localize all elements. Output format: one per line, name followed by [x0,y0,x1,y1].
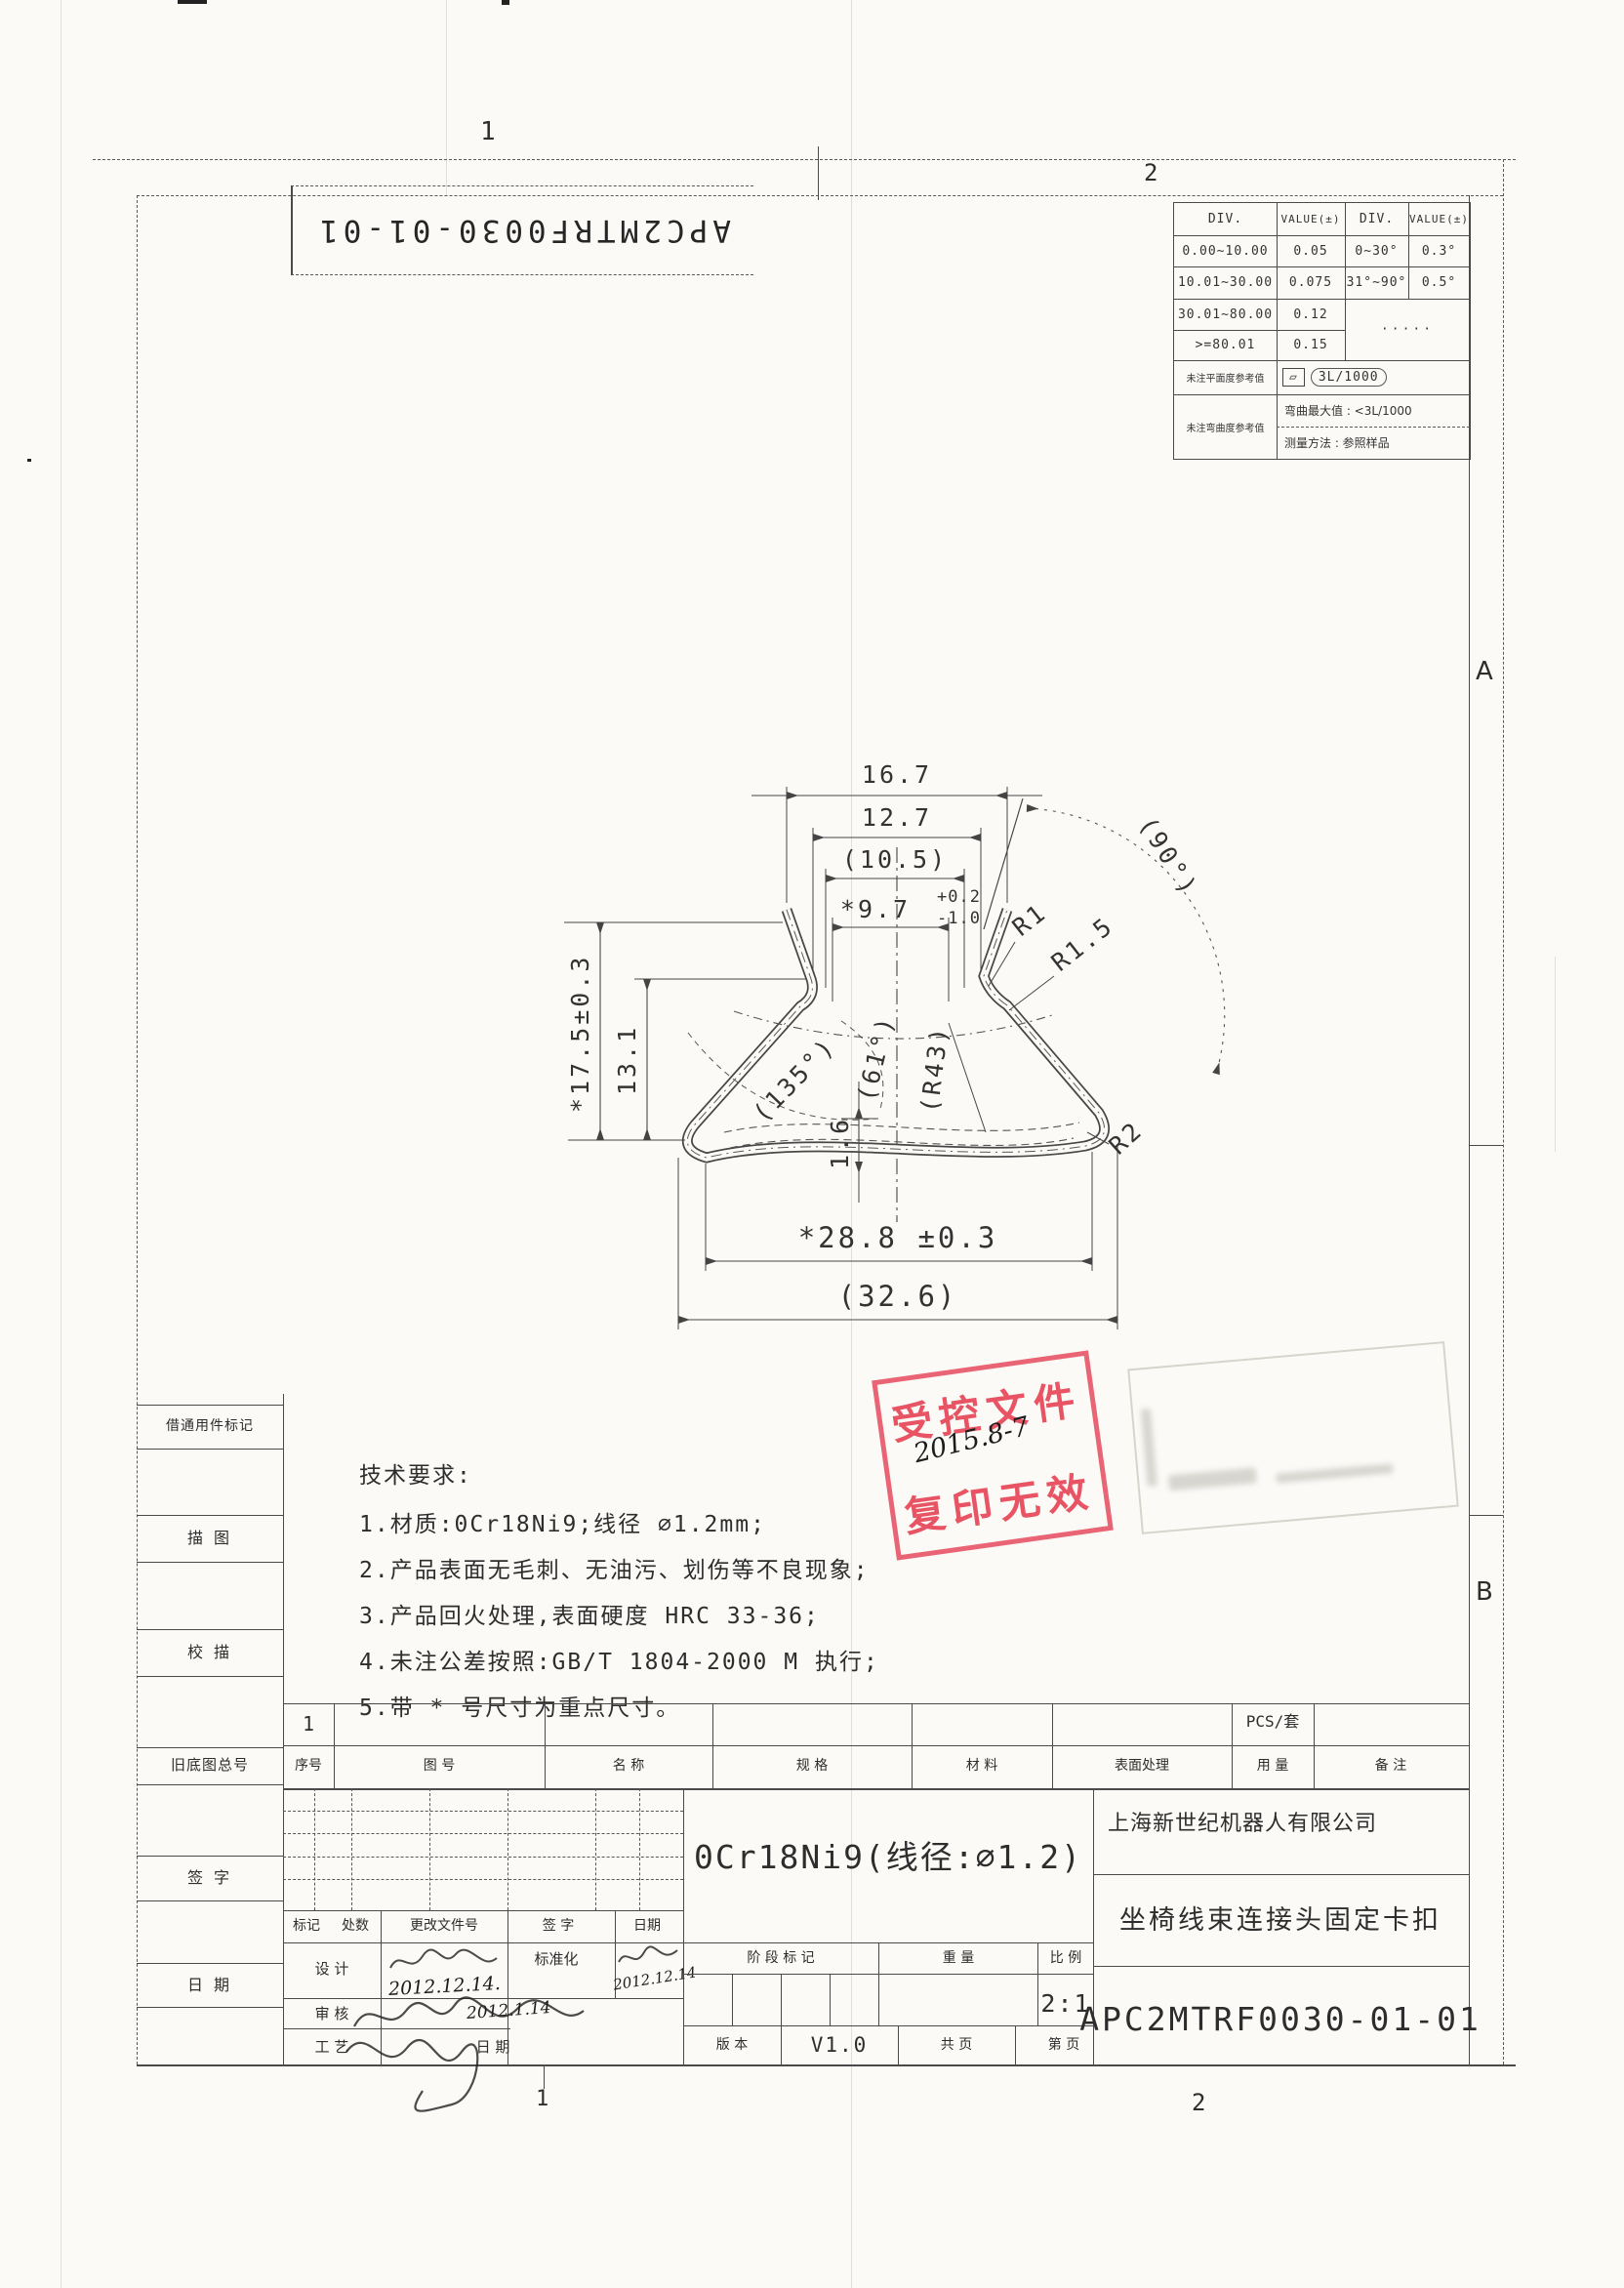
dim-angle-61: (61°) [852,1012,901,1105]
arc-90 [1027,808,1225,1074]
dim-10-5: (10.5) [842,845,948,874]
margin-label-signature: 签 字 [187,1870,232,1886]
tb-version-value: V1.0 [811,2035,869,2056]
controlled-document-stamp: 受控文件 复印无效 [872,1350,1114,1560]
tb-label-version: 版 本 [716,2038,748,2052]
phantom-curve [724,1123,1079,1132]
zone-tick-right [1469,1145,1503,1146]
bom-top-line [283,1703,1469,1704]
tb-label-design: 设 计 [315,1962,349,1977]
tol-bend-label: 未注弯曲度参考值 [1174,394,1277,459]
frame-right-outer [1503,159,1504,2064]
tol-cell: >=80.01 [1174,330,1277,360]
flatness-symbol-icon: ▱ [1282,368,1305,387]
titleblock-top-line [283,1788,1469,1790]
tol-header-value: VALUE(±) [1277,203,1345,235]
dim-r1: R1 [1007,898,1052,942]
design-signature-scrawl [386,1942,503,1983]
dim-9-7-tol-lower: -1.0 [937,909,981,928]
bom-header-note: 备 注 [1375,1759,1406,1773]
frame-top-outer [93,159,1516,160]
zone-number-top-2: 2 [1144,161,1157,184]
tol-cell-merged: ····· [1345,299,1470,360]
bom-header-name: 名 称 [613,1759,644,1773]
tol-cell: 0.3° [1408,235,1470,266]
tol-header-value2: VALUE(±) [1408,203,1470,235]
tb-label-stage: 阶 段 标 记 [747,1951,814,1965]
tolerance-table: DIV. VALUE(±) DIV. VALUE(±) 0.00~10.00 0… [1173,202,1471,460]
margin-label-old-master-no: 旧底图总号 [171,1758,249,1773]
drawing-sheet: 1 2 1 2 A B APC2MTRF0030-01-01 DIV. VALU… [0,0,1624,2288]
tb-material-spec: 0Cr18Ni9(线径:∅1.2) [694,1841,1082,1873]
frame-right-inner [1469,195,1470,2064]
zone-number-bottom-2: 2 [1192,2091,1205,2114]
dim-13-1: 13.1 [613,1025,641,1095]
tb-label-pages-total: 共 页 [941,2038,972,2052]
faint-stamp [1127,1341,1459,1534]
zone-number-top-1: 1 [480,119,496,144]
tol-cell: 0.05 [1277,235,1345,266]
tol-cell: 0~30° [1345,235,1408,266]
fold-line [1555,957,1556,1152]
tech-req-item: 2.产品表面无毛刺、无油污、划伤等不良现象; [359,1551,879,1584]
tol-cell: 10.01~30.00 [1174,266,1277,299]
flatness-value: 3L/1000 [1311,368,1387,387]
tb-label-check: 审 核 [315,2007,349,2022]
tech-req-item: 1.材质:0Cr18Ni9;线径 ∅1.2mm; [359,1505,879,1538]
zone-number-bottom-1: 1 [536,2089,548,2110]
dim-9-7: *9.7 [840,895,911,923]
tb-label-count: 处数 [342,1919,369,1933]
tol-bend-method: 测量方法 : 参照样品 [1277,427,1478,459]
standardize-signature-scrawl [615,1942,683,1974]
zone-tick-right [1469,1515,1503,1516]
dim-1-6: 1.6 [826,1117,854,1169]
fold-line [61,0,61,2288]
tb-drawing-number: APC2MTRF0030-01-01 [1079,2003,1482,2035]
dim-r1-5: R1.5 [1046,911,1119,976]
technical-requirements: 技术要求: 1.材质:0Cr18Ni9;线径 ∅1.2mm; 2.产品表面无毛刺… [359,1456,879,1722]
tech-req-title: 技术要求: [359,1456,879,1490]
margin-label-borrowed-parts: 借通用件标记 [166,1419,254,1433]
tb-label-change-doc: 更改文件号 [410,1919,478,1933]
tol-cell: 0.00~10.00 [1174,235,1277,266]
tb-label-date: 日期 [633,1919,661,1933]
tol-cell: 0.15 [1277,330,1345,360]
tol-flatness-label: 未注平面度参考值 [1174,360,1277,394]
tb-label-page-no: 第 页 [1048,2038,1079,2052]
tech-req-item: 4.未注公差按照:GB/T 1804-2000 M 执行; [359,1643,879,1676]
process-signature-scrawl [337,2022,493,2130]
tech-req-item: 3.产品回火处理,表面硬度 HRC 33-36; [359,1597,879,1630]
margin-label-tracing: 描 图 [187,1531,232,1546]
r43-leader [949,1023,986,1132]
scan-speck [178,0,207,4]
tech-req-item: 5.带 * 号尺寸为重点尺寸。 [359,1689,879,1722]
tb-company-name: 上海新世纪机器人有限公司 [1108,1814,1377,1835]
dim-9-7-tol-upper: +0.2 [937,887,981,907]
tb-label-mark: 标记 [293,1919,320,1933]
tol-header-div2: DIV. [1345,203,1408,235]
zone-letter-a: A [1476,659,1493,684]
stamp-line-2: 复印无效 [900,1458,1098,1544]
zone-tick-top [818,146,819,200]
inverted-docnumber-box: APC2MTRF0030-01-01 [291,185,753,275]
dim-r2: R2 [1104,1116,1149,1161]
inverted-docnumber-text: APC2MTRF0030-01-01 [315,213,731,248]
bom-header-qty: 用 量 [1257,1759,1288,1773]
zone-letter-b: B [1476,1579,1493,1605]
tol-cell: 30.01~80.00 [1174,299,1277,330]
bom-header-index: 序号 [295,1759,322,1773]
bom-header-drawing-no: 图 号 [424,1759,455,1773]
tb-label-standardize: 标准化 [534,1952,578,1967]
dim-32-6: (32.6) [838,1280,958,1313]
dim-16-7: 16.7 [862,760,932,789]
dim-r43: (R43) [915,1023,954,1114]
tb-label-scale: 比 例 [1050,1951,1081,1965]
bom-header-material: 材 料 [966,1759,997,1773]
tol-cell: 0.5° [1408,266,1470,299]
tol-cell: 31°~90° [1345,266,1408,299]
tb-label-weight: 重 量 [943,1951,974,1965]
dim-12-7: 12.7 [862,803,932,832]
bom-pcs-per-set: PCS/套 [1246,1714,1300,1730]
fold-line [446,0,447,195]
part-drawing: 16.7 12.7 (10.5) *9.7 +0.2 -1.0 *17.5±0.… [527,740,1269,1384]
tb-part-name: 坐椅线束连接头固定卡扣 [1119,1907,1441,1934]
dim-17-5: *17.5±0.3 [566,955,594,1113]
tol-cell: 0.12 [1277,299,1345,330]
scan-speck [27,459,31,462]
margin-label-trace-check: 校 描 [187,1645,232,1660]
bom-item-number: 1 [303,1714,314,1734]
tol-cell: 0.075 [1277,266,1345,299]
bom-header-spec: 规 格 [796,1759,828,1773]
scan-speck [502,0,509,5]
bom-header-surface: 表面处理 [1115,1759,1169,1773]
zone-tick-bottom [544,2064,545,2089]
tol-header-div: DIV. [1174,203,1277,235]
tol-bend-max: 弯曲最大值 : <3L/1000 [1277,394,1478,427]
margin-label-date: 日 期 [187,1978,232,1993]
dim-28-8: *28.8 ±0.3 [798,1221,998,1254]
tb-label-sign: 签 字 [543,1919,574,1933]
dim-angle-90: (90°) [1133,812,1203,902]
